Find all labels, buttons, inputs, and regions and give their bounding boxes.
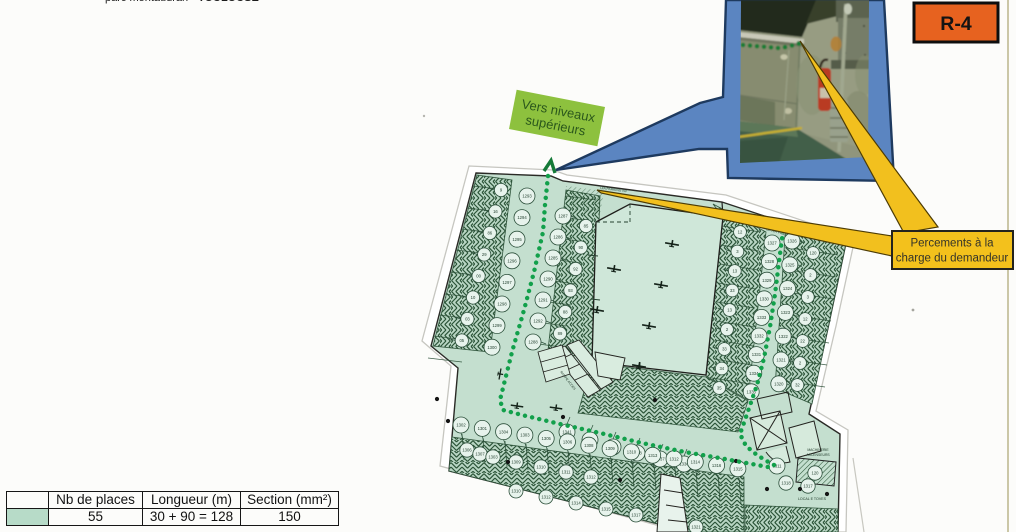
svg-text:1303: 1303 [488, 455, 498, 460]
svg-text:89: 89 [558, 331, 563, 336]
svg-text:1304: 1304 [499, 429, 509, 434]
svg-text:charge du demandeur: charge du demandeur [896, 253, 1009, 265]
svg-text:1290: 1290 [543, 277, 553, 282]
svg-text:34: 34 [719, 366, 724, 371]
svg-text:1328: 1328 [765, 259, 775, 264]
svg-text:00: 00 [476, 274, 481, 279]
svg-text:1306: 1306 [563, 439, 573, 444]
svg-text:1305: 1305 [542, 436, 552, 441]
svg-text:1293: 1293 [522, 194, 532, 199]
svg-text:22: 22 [800, 339, 805, 344]
svg-text:1321: 1321 [776, 358, 786, 363]
svg-text:1285: 1285 [548, 256, 558, 261]
svg-text:120: 120 [810, 251, 818, 256]
svg-text:1324: 1324 [783, 286, 793, 291]
svg-text:1302: 1302 [456, 423, 466, 428]
svg-text:1288: 1288 [528, 340, 538, 345]
svg-text:LOCAL E TOVES: LOCAL E TOVES [798, 497, 827, 501]
svg-text:1322: 1322 [779, 334, 789, 339]
svg-text:1310: 1310 [511, 489, 521, 494]
svg-text:1292: 1292 [533, 319, 543, 324]
svg-text:1332: 1332 [754, 334, 764, 339]
svg-text:1317: 1317 [631, 513, 641, 518]
svg-text:1287: 1287 [558, 214, 568, 219]
svg-text:1312: 1312 [586, 475, 596, 480]
svg-text:1306: 1306 [462, 448, 472, 453]
svg-text:03: 03 [465, 317, 470, 322]
svg-text:1318: 1318 [781, 481, 791, 486]
svg-text:1291: 1291 [538, 298, 548, 303]
svg-text:1315: 1315 [601, 507, 611, 512]
svg-text:MACHINERIE: MACHINERIE [807, 448, 829, 452]
svg-text:05: 05 [459, 338, 464, 343]
svg-text:90: 90 [578, 245, 583, 250]
svg-text:R-4: R-4 [940, 13, 972, 35]
svg-text:1301: 1301 [478, 426, 488, 431]
svg-text:1310: 1310 [536, 465, 546, 470]
svg-text:1325: 1325 [785, 262, 795, 267]
svg-text:1321: 1321 [691, 525, 701, 530]
svg-text:1316: 1316 [712, 463, 722, 468]
svg-text:1298: 1298 [497, 302, 507, 307]
svg-text:1309: 1309 [605, 446, 615, 451]
svg-text:1314: 1314 [691, 460, 701, 465]
svg-text:10: 10 [471, 295, 476, 300]
svg-text:ASCENSEURS: ASCENSEURS [806, 453, 830, 457]
svg-text:1297: 1297 [502, 280, 512, 285]
svg-text:1303: 1303 [520, 433, 530, 438]
svg-text:32: 32 [795, 383, 800, 388]
svg-text:1286: 1286 [553, 235, 563, 240]
svg-text:12: 12 [738, 230, 743, 235]
svg-text:29: 29 [482, 252, 487, 257]
svg-text:1315: 1315 [733, 466, 743, 471]
svg-text:1294: 1294 [517, 215, 527, 220]
svg-text:1309: 1309 [511, 460, 521, 465]
svg-text:1312: 1312 [669, 456, 679, 461]
svg-text:92: 92 [573, 267, 578, 272]
svg-text:1308: 1308 [584, 443, 594, 448]
svg-text:1314: 1314 [571, 501, 581, 506]
svg-text:1312: 1312 [541, 495, 551, 500]
svg-text:13: 13 [727, 308, 732, 313]
svg-text:1329: 1329 [762, 278, 772, 283]
svg-text:1311: 1311 [561, 470, 571, 475]
svg-text:13: 13 [732, 269, 737, 274]
svg-text:93: 93 [568, 288, 573, 293]
svg-text:1327: 1327 [767, 241, 777, 246]
svg-text:16: 16 [493, 209, 498, 214]
svg-text:120: 120 [812, 471, 820, 476]
svg-text:1320: 1320 [774, 381, 784, 386]
svg-text:86: 86 [487, 231, 492, 236]
svg-text:33: 33 [730, 288, 735, 293]
svg-text:1296: 1296 [507, 258, 517, 263]
svg-text:1333: 1333 [757, 315, 767, 320]
svg-text:88: 88 [563, 310, 568, 315]
svg-text:1323: 1323 [781, 310, 791, 315]
svg-text:Percements à la: Percements à la [910, 238, 994, 250]
svg-text:85: 85 [584, 224, 589, 229]
svg-text:1317: 1317 [803, 484, 813, 489]
svg-text:12: 12 [803, 317, 808, 322]
svg-text:1295: 1295 [512, 237, 522, 242]
svg-text:1331: 1331 [752, 352, 762, 357]
svg-text:33: 33 [722, 347, 727, 352]
svg-text:1313: 1313 [648, 453, 658, 458]
svg-text:1330: 1330 [760, 296, 770, 301]
svg-text:1326: 1326 [787, 239, 797, 244]
svg-text:35: 35 [717, 386, 722, 391]
svg-text:1310: 1310 [627, 450, 637, 455]
svg-text:1307: 1307 [475, 452, 485, 457]
svg-text:1300: 1300 [487, 345, 497, 350]
svg-text:1299: 1299 [492, 323, 502, 328]
